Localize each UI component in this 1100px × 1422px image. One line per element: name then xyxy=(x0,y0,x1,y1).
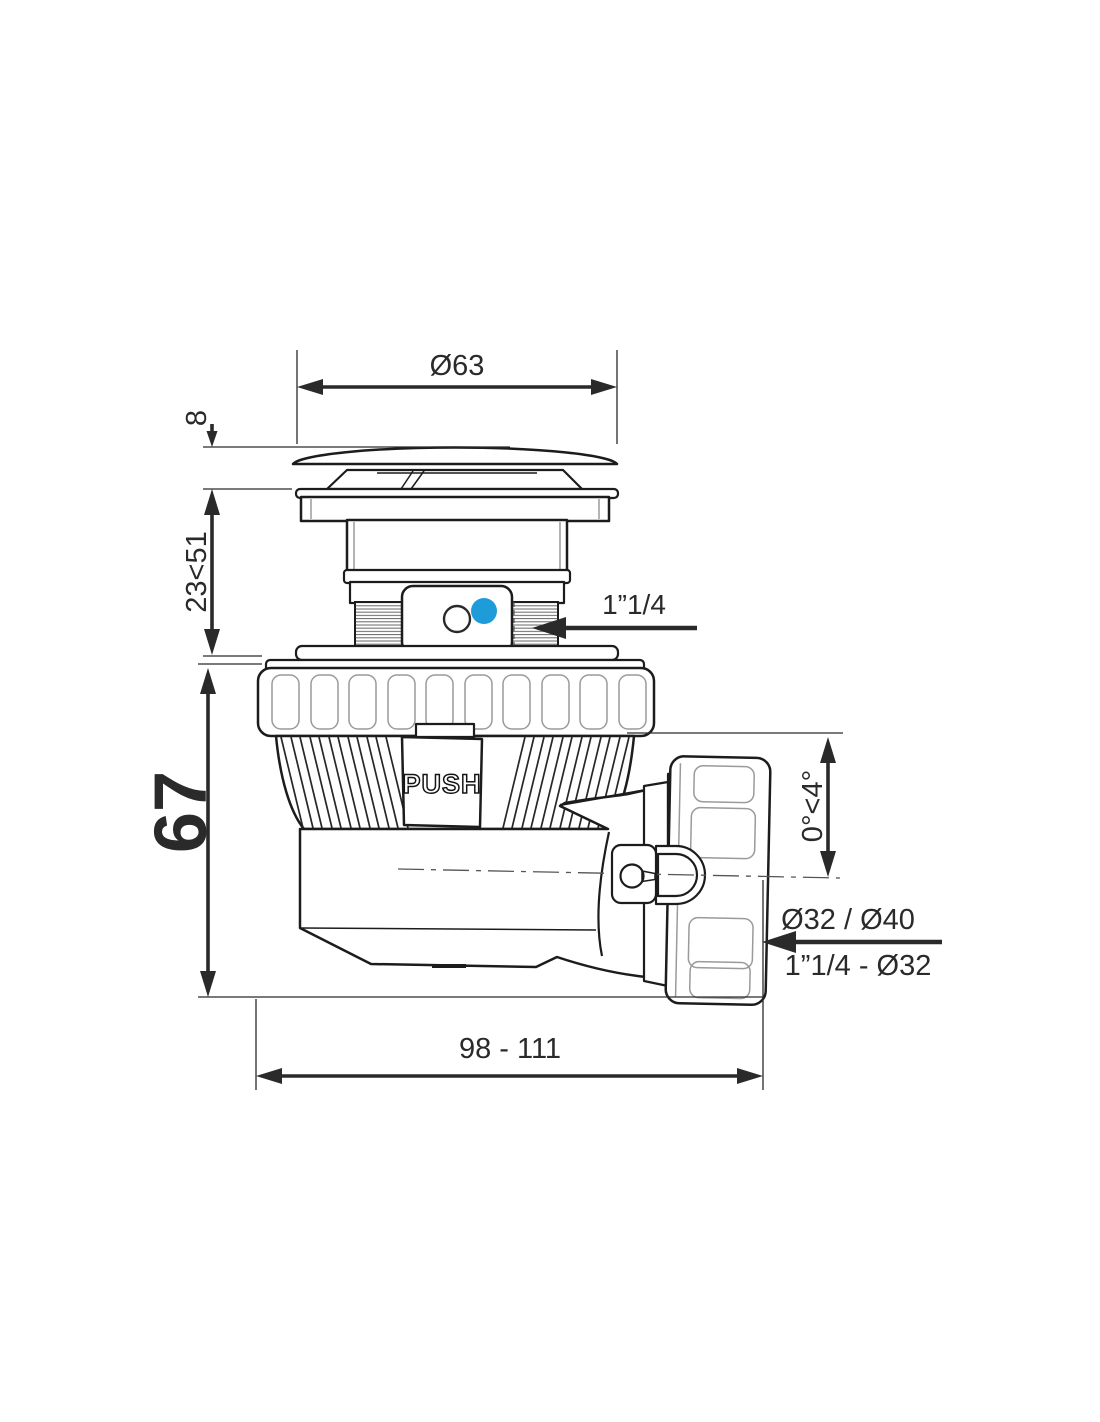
push-label: PUSH xyxy=(402,769,481,799)
keyhole-tab xyxy=(612,845,656,903)
retaining-clip xyxy=(402,586,512,653)
waste-trap-drawing: PUSH Ø63 8 23<51 67 1”1/4 xyxy=(0,0,1100,1422)
blue-indicator-dot xyxy=(471,598,497,624)
dim-outlet-size: Ø32 / Ø40 1”1/4 - Ø32 xyxy=(762,904,942,982)
dim-outlet-angle-label: 0°<4° xyxy=(797,770,829,842)
dim-overall-length-label: 98 - 111 xyxy=(459,1033,561,1065)
dim-cap-height-label: 8 xyxy=(181,410,213,426)
locknut xyxy=(258,646,654,736)
dim-outlet-thread-label: 1”1/4 - Ø32 xyxy=(785,950,932,982)
pop-up-cap xyxy=(293,448,617,490)
dim-inlet-thread-label: 1”1/4 xyxy=(602,589,666,620)
white-indicator-dot xyxy=(444,606,470,632)
keyhole-icon xyxy=(621,865,644,888)
dim-outlet-diameters-label: Ø32 / Ø40 xyxy=(781,904,915,936)
dim-cap-diameter: Ø63 xyxy=(297,350,617,444)
push-tab: PUSH xyxy=(402,724,482,827)
technical-drawing-page: PUSH Ø63 8 23<51 67 1”1/4 xyxy=(0,0,1100,1422)
cap-flange xyxy=(296,489,618,521)
dim-cap-diameter-label: Ø63 xyxy=(430,350,485,382)
dim-adjust-range: 23<51 xyxy=(181,489,262,656)
dim-adjust-range-label: 23<51 xyxy=(181,531,213,612)
dim-body-height-label: 67 xyxy=(139,771,222,853)
